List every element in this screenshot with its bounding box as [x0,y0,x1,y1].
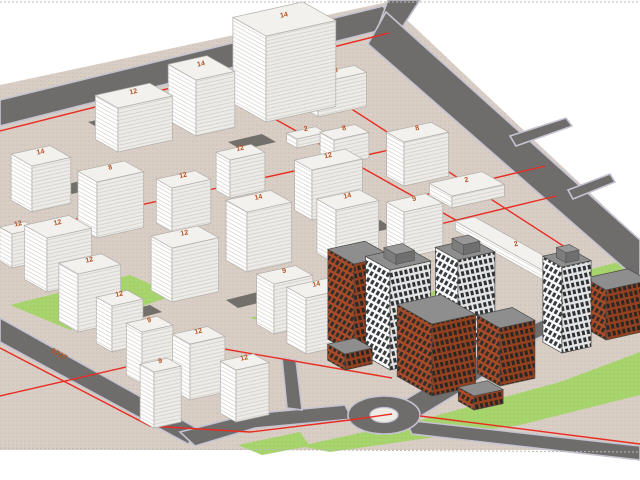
block-c-12f: 12 [216,144,265,198]
block-w-8-face-right [97,172,144,238]
res-brick-3 [477,308,535,387]
tower-n-main-face-right [266,21,336,123]
res-brick-2-face-right [432,314,476,396]
block-nw-1: 12 [95,83,172,152]
res-tower-3 [543,245,591,354]
block-w-12c-face-left [59,263,78,332]
tower-n-2: 14 [168,56,235,136]
block-c-12a: 12 [156,171,211,232]
tower-sw-12c-face-right [236,363,269,422]
res-brick-3-face-right [500,320,535,386]
block-c-12a-face-left [156,179,172,232]
res-tower-3-face-right [562,261,591,353]
block-s-9a-face-left [257,274,274,334]
res-tower-3-face-left [543,256,562,353]
tower-sw-12c-face-left [220,361,236,422]
tower-sw-9b: 9 [140,358,181,428]
res-brick-4 [585,269,640,340]
tower-n-2-face-right [196,71,235,136]
tower-sw-9b-face-left [140,364,154,428]
site-plan-3d-viewport[interactable]: 0727 81414212881221412128914121421212129… [0,0,640,480]
tower-n-main: 14 [233,2,336,122]
block-c-14a: 14 [226,190,292,272]
block-c-12e-face-left [295,160,312,220]
res-brick-4-face-right [606,281,640,341]
res-brick-2 [397,295,475,396]
block-c-12d-face-right [172,238,219,302]
block-s-14-face-left [287,287,306,354]
block-w-14-face-right [32,157,71,212]
massing-model-render: 0727 81414212881221412128914121421212129… [0,0,640,480]
res-brick-1-face-left [328,249,354,354]
tower-sw-9b-face-right [154,366,181,428]
block-c-12a-face-right [172,179,211,232]
block-c-12d: 12 [151,226,219,302]
tower-sw-9-face-left [126,323,142,384]
tower-sw-12a-face-left [96,297,112,352]
tower-sw-12c: 12 [220,354,269,422]
block-c-14a-face-left [226,200,247,272]
tower-sw-12b-face-right [190,336,225,400]
block-w-14: 14 [11,146,71,212]
slab-ne-8: 8 [387,122,449,186]
block-c-14a-face-right [247,202,292,272]
